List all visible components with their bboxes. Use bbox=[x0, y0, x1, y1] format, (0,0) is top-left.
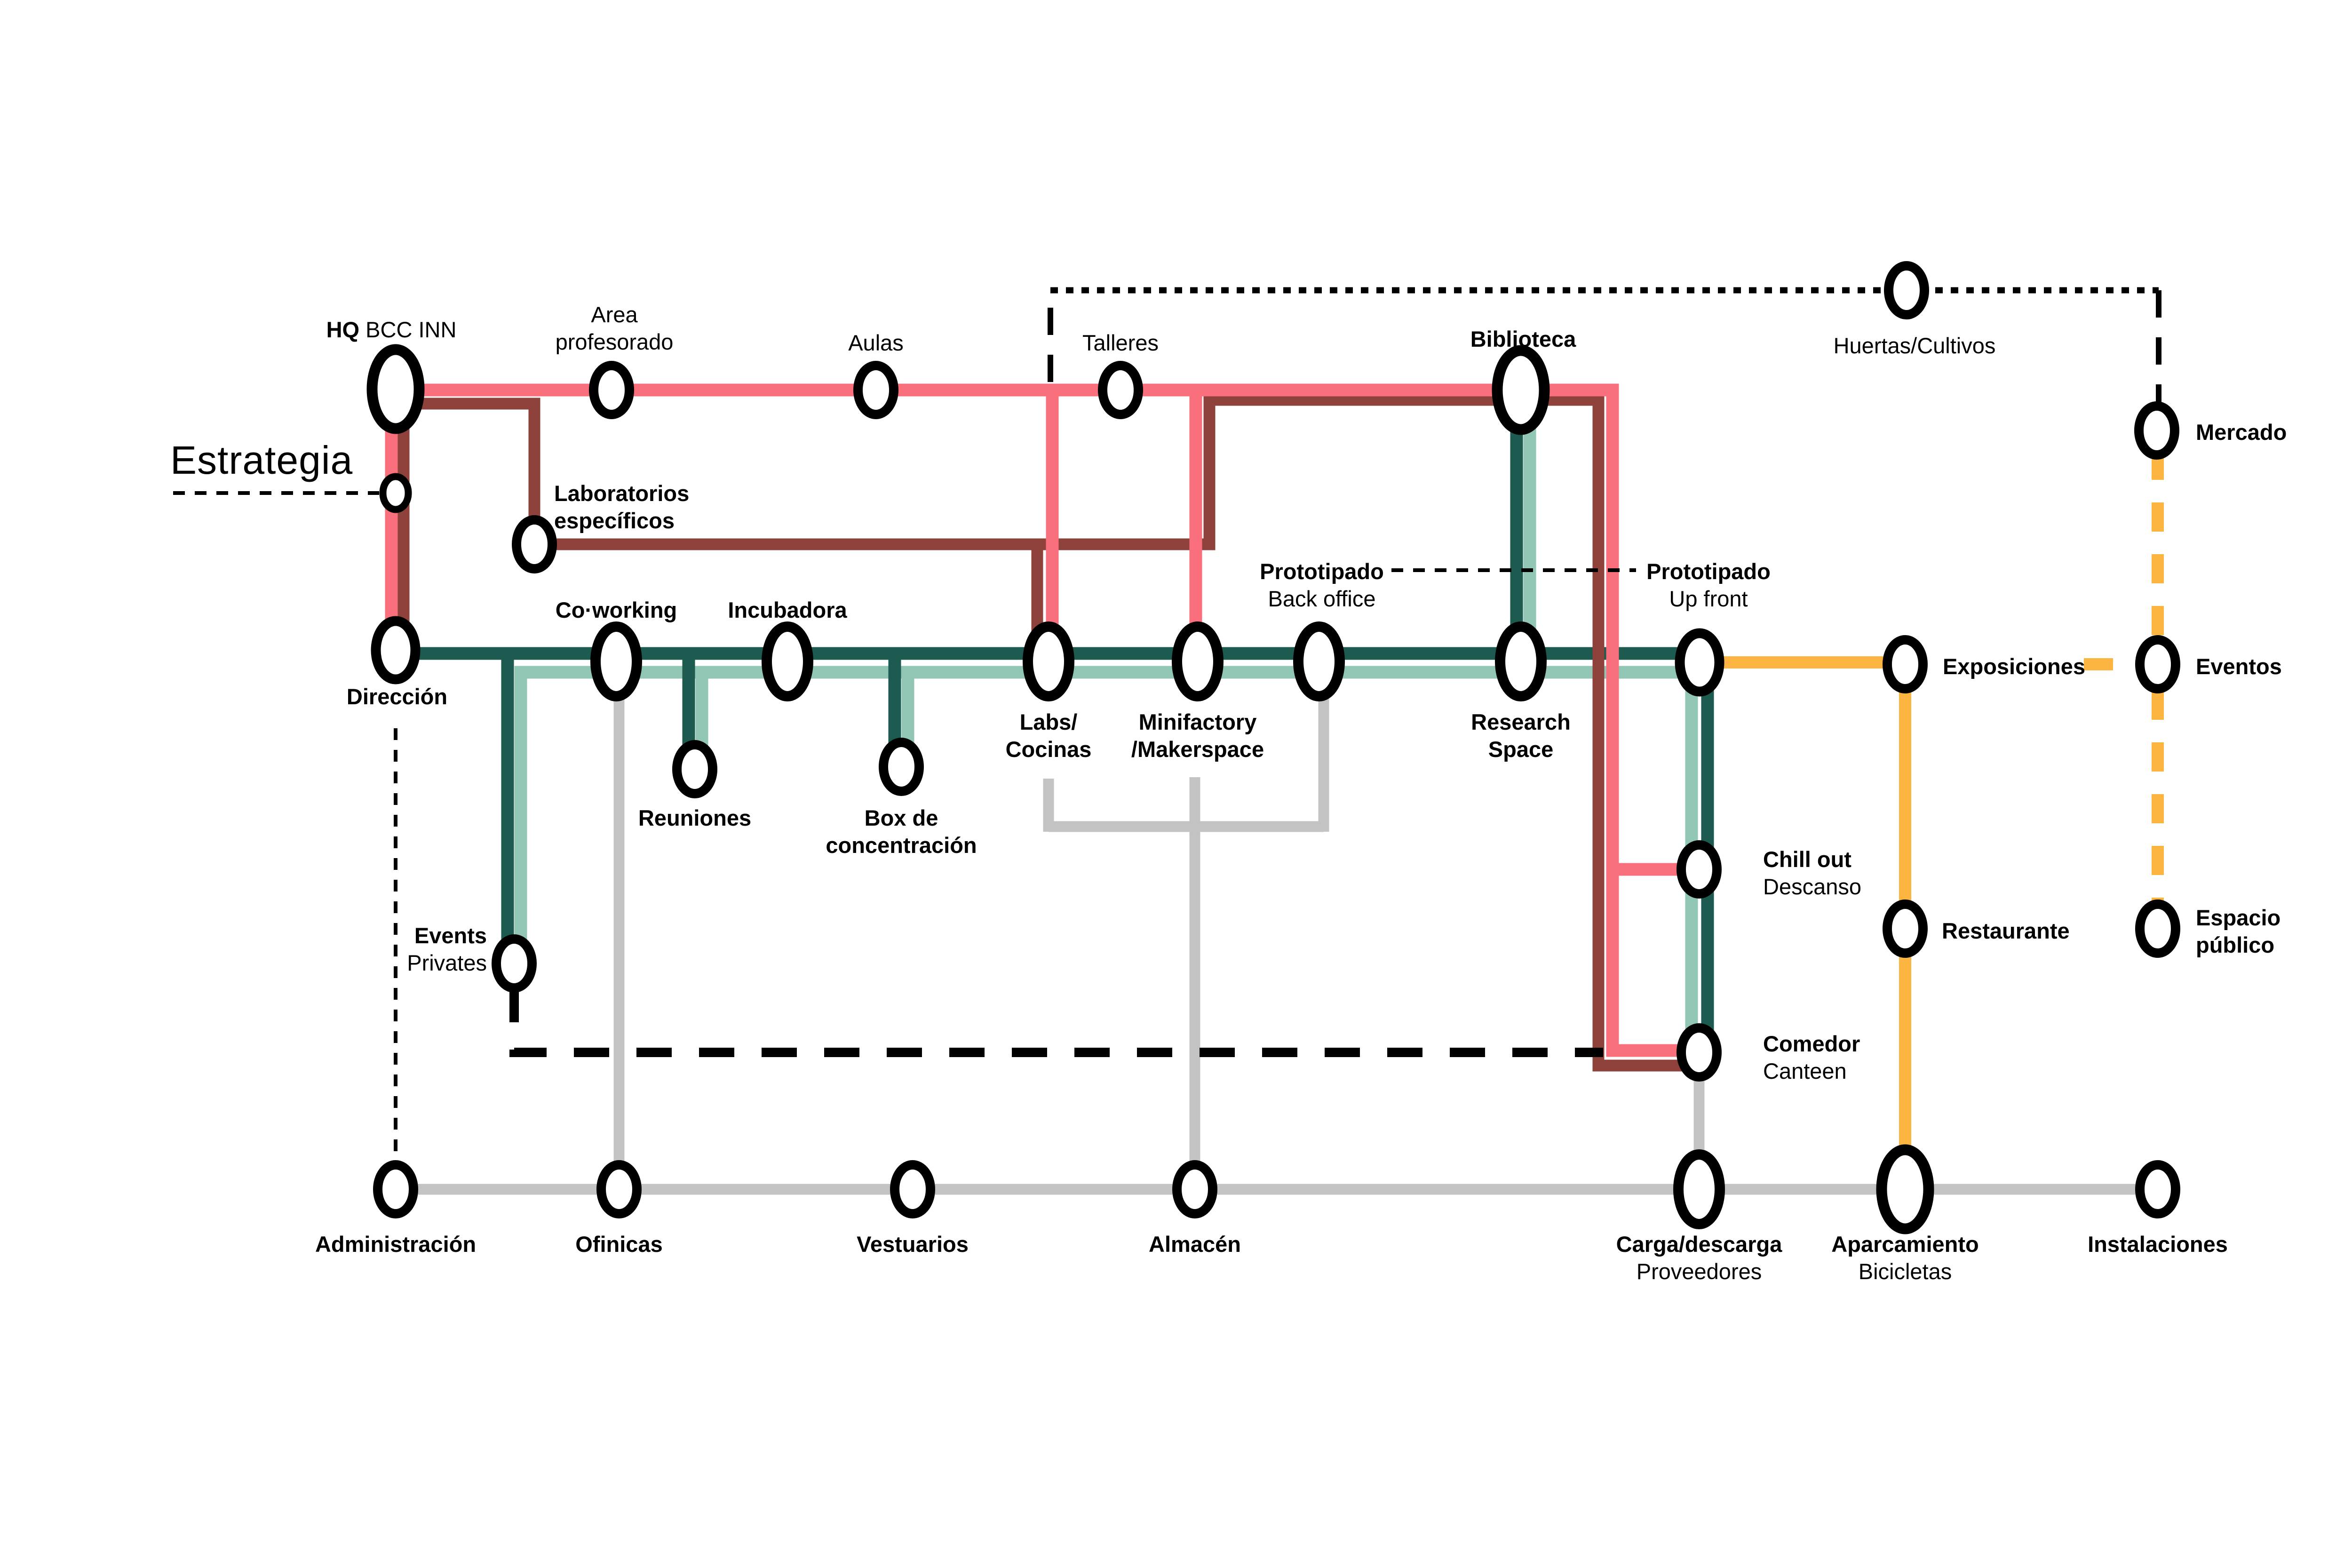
label-administracion-text: Administración bbox=[315, 1232, 476, 1257]
label-talleres-line: Talleres bbox=[1082, 329, 1159, 357]
label-incubadora-text: Incubadora bbox=[728, 597, 847, 622]
label-espacio-publico-text: público bbox=[2196, 932, 2274, 957]
label-area-profesorado-text: profesorado bbox=[556, 329, 674, 354]
label-labs-cocinas-text: Cocinas bbox=[1006, 737, 1092, 762]
label-chill-out-text: Chill out bbox=[1763, 847, 1851, 872]
station-aparcamiento bbox=[1882, 1150, 1929, 1229]
station-administracion bbox=[378, 1165, 413, 1214]
station-coworking bbox=[596, 627, 637, 696]
label-carga-descarga-line: Proveedores bbox=[1616, 1258, 1782, 1285]
station-talleres bbox=[1103, 366, 1138, 414]
label-exposiciones: Exposiciones bbox=[1943, 653, 2085, 680]
station-eventos bbox=[2140, 640, 2176, 689]
label-coworking-text: Co·working bbox=[556, 597, 677, 622]
label-direccion-line: Dirección bbox=[347, 683, 447, 710]
station-labs-cocinas bbox=[1028, 627, 1069, 696]
label-minifactory-line: Minifactory bbox=[1131, 708, 1264, 736]
label-laboratorios-line: Laboratorios bbox=[554, 480, 689, 507]
line-dashed-events-comedor bbox=[514, 987, 1603, 1052]
label-area-profesorado-line: profesorado bbox=[556, 328, 674, 356]
label-mercado: Mercado bbox=[2196, 419, 2287, 446]
label-prototipado-back: PrototipadoBack office bbox=[1260, 558, 1384, 613]
label-eventos-text: Eventos bbox=[2196, 654, 2282, 679]
label-labs-cocinas-text: Labs/ bbox=[1020, 709, 1078, 734]
label-espacio-publico-line: Espacio bbox=[2196, 904, 2280, 931]
label-talleres-text: Talleres bbox=[1082, 330, 1159, 355]
label-laboratorios-text: específicos bbox=[554, 508, 675, 533]
label-laboratorios: Laboratoriosespecíficos bbox=[554, 480, 689, 534]
label-instalaciones-text: Instalaciones bbox=[2088, 1232, 2228, 1257]
label-events-privates: EventsPrivates bbox=[407, 922, 487, 977]
label-huertas-text: Huertas/Cultivos bbox=[1834, 333, 1996, 358]
label-labs-cocinas-line: Cocinas bbox=[1006, 736, 1092, 763]
station-espacio-publico bbox=[2140, 904, 2176, 953]
station-chill-out bbox=[1681, 845, 1717, 894]
label-prototipado-up-text: Up front bbox=[1669, 586, 1748, 611]
label-chill-out-line: Chill out bbox=[1763, 846, 1861, 873]
label-aparcamiento-line: Bicicletas bbox=[1831, 1258, 1979, 1285]
label-research-space-text: Research bbox=[1471, 709, 1571, 734]
label-events-privates-line: Privates bbox=[407, 949, 487, 977]
station-aulas bbox=[858, 366, 894, 414]
label-ofinicas: Ofinicas bbox=[575, 1231, 662, 1258]
label-chill-out-text: Descanso bbox=[1763, 874, 1861, 899]
station-almacen bbox=[1177, 1165, 1213, 1214]
label-espacio-publico-text: Espacio bbox=[2196, 905, 2280, 930]
station-laboratorios bbox=[516, 520, 552, 569]
label-huertas-line: Huertas/Cultivos bbox=[1834, 332, 1996, 359]
station-restaurante bbox=[1887, 904, 1923, 953]
label-mercado-text: Mercado bbox=[2196, 420, 2287, 445]
station-estrategia bbox=[383, 477, 408, 509]
label-research-space: ResearchSpace bbox=[1471, 708, 1571, 763]
metro-map-svg bbox=[0, 0, 2352, 1568]
station-incubadora bbox=[767, 627, 808, 696]
label-prototipado-up-line: Prototipado bbox=[1646, 558, 1771, 585]
label-huertas: Huertas/Cultivos bbox=[1834, 332, 1996, 359]
label-research-space-line: Space bbox=[1471, 736, 1571, 763]
label-almacen: Almacén bbox=[1149, 1231, 1241, 1258]
metro-map-canvas: HQ BCC INNAreaprofesoradoAulasTalleresBi… bbox=[0, 0, 2352, 1568]
label-box-concentracion-line: concentración bbox=[826, 832, 977, 859]
station-direccion bbox=[376, 621, 415, 679]
label-administracion: Administración bbox=[315, 1231, 476, 1258]
label-comedor-text: Canteen bbox=[1763, 1059, 1847, 1083]
label-aulas-line: Aulas bbox=[848, 329, 904, 357]
station-research-space bbox=[1500, 627, 1542, 696]
label-comedor-line: Comedor bbox=[1763, 1030, 1860, 1058]
label-estrategia-line: Estrategia bbox=[170, 438, 353, 483]
label-espacio-publico: Espaciopúblico bbox=[2196, 904, 2280, 959]
station-hq bbox=[372, 350, 419, 429]
label-comedor: ComedorCanteen bbox=[1763, 1030, 1860, 1085]
label-chill-out: Chill outDescanso bbox=[1763, 846, 1861, 900]
label-box-concentracion-text: Box de bbox=[865, 805, 938, 830]
label-vestuarios-text: Vestuarios bbox=[857, 1232, 969, 1257]
label-area-profesorado-text: Area bbox=[591, 302, 637, 327]
label-instalaciones: Instalaciones bbox=[2088, 1231, 2228, 1258]
label-exposiciones-text: Exposiciones bbox=[1943, 654, 2085, 679]
label-aparcamiento-line: Aparcamiento bbox=[1831, 1231, 1979, 1258]
label-box-concentracion-line: Box de bbox=[826, 804, 977, 832]
station-prototipado-back bbox=[1298, 627, 1340, 696]
label-carga-descarga-text: Carga/descarga bbox=[1616, 1232, 1782, 1257]
label-labs-cocinas-line: Labs/ bbox=[1006, 708, 1092, 736]
label-eventos-line: Eventos bbox=[2196, 653, 2282, 680]
station-events-privates bbox=[496, 939, 532, 988]
label-instalaciones-line: Instalaciones bbox=[2088, 1231, 2228, 1258]
label-aulas-text: Aulas bbox=[848, 330, 904, 355]
label-estrategia: Estrategia bbox=[170, 438, 353, 483]
label-direccion-text: Dirección bbox=[347, 684, 447, 709]
label-minifactory-text: Minifactory bbox=[1139, 709, 1257, 734]
label-biblioteca: Biblioteca bbox=[1470, 326, 1576, 353]
station-minifactory bbox=[1177, 627, 1218, 696]
label-prototipado-up-line: Up front bbox=[1646, 585, 1771, 613]
label-incubadora: Incubadora bbox=[728, 597, 847, 624]
label-reuniones: Reuniones bbox=[638, 804, 751, 832]
label-minifactory-text: /Makerspace bbox=[1131, 737, 1264, 762]
label-minifactory: Minifactory/Makerspace bbox=[1131, 708, 1264, 763]
label-carga-descarga: Carga/descargaProveedores bbox=[1616, 1231, 1782, 1285]
label-carga-descarga-text: Proveedores bbox=[1637, 1259, 1762, 1284]
label-ofinicas-text: Ofinicas bbox=[575, 1232, 662, 1257]
station-instalaciones bbox=[2140, 1165, 2176, 1214]
label-research-space-text: Space bbox=[1488, 737, 1553, 762]
label-direccion: Dirección bbox=[347, 683, 447, 710]
label-box-concentracion-text: concentración bbox=[826, 833, 977, 858]
label-area-profesorado-line: Area bbox=[556, 301, 674, 328]
label-talleres: Talleres bbox=[1082, 329, 1159, 357]
label-almacen-line: Almacén bbox=[1149, 1231, 1241, 1258]
label-aulas: Aulas bbox=[848, 329, 904, 357]
station-huertas bbox=[1889, 266, 1924, 315]
label-laboratorios-line: específicos bbox=[554, 507, 689, 534]
label-restaurante-text: Restaurante bbox=[1942, 918, 2070, 943]
station-ofinicas bbox=[601, 1165, 637, 1214]
label-aparcamiento-text: Bicicletas bbox=[1859, 1259, 1952, 1284]
label-carga-descarga-line: Carga/descarga bbox=[1616, 1231, 1782, 1258]
label-restaurante: Restaurante bbox=[1942, 917, 2070, 945]
label-prototipado-up-text: Prototipado bbox=[1646, 559, 1771, 584]
label-ofinicas-line: Ofinicas bbox=[575, 1231, 662, 1258]
label-estrategia-text: Estrategia bbox=[170, 438, 353, 482]
label-events-privates-text: Events bbox=[414, 923, 487, 948]
label-hq-line: HQ BCC INN bbox=[326, 316, 457, 343]
label-restaurante-line: Restaurante bbox=[1942, 917, 2070, 945]
station-box-concentracion bbox=[883, 742, 919, 791]
station-exposiciones bbox=[1887, 640, 1923, 689]
label-incubadora-line: Incubadora bbox=[728, 597, 847, 624]
label-aparcamiento-text: Aparcamiento bbox=[1831, 1232, 1979, 1257]
label-events-privates-line: Events bbox=[407, 922, 487, 949]
label-comedor-line: Canteen bbox=[1763, 1058, 1860, 1085]
label-prototipado-back-line: Back office bbox=[1260, 585, 1384, 613]
station-biblioteca bbox=[1497, 350, 1544, 430]
station-carga-descarga bbox=[1678, 1154, 1720, 1224]
label-events-privates-text: Privates bbox=[407, 950, 487, 975]
station-junction-expo bbox=[1680, 633, 1719, 692]
label-comedor-text: Comedor bbox=[1763, 1031, 1860, 1056]
station-comedor bbox=[1681, 1028, 1717, 1077]
label-labs-cocinas: Labs/Cocinas bbox=[1006, 708, 1092, 763]
label-vestuarios-line: Vestuarios bbox=[857, 1231, 969, 1258]
label-minifactory-line: /Makerspace bbox=[1131, 736, 1264, 763]
label-biblioteca-line: Biblioteca bbox=[1470, 326, 1576, 353]
station-mercado bbox=[2139, 406, 2175, 455]
label-administracion-line: Administración bbox=[315, 1231, 476, 1258]
label-coworking: Co·working bbox=[556, 597, 677, 624]
label-research-space-line: Research bbox=[1471, 708, 1571, 736]
label-aparcamiento: AparcamientoBicicletas bbox=[1831, 1231, 1979, 1285]
label-prototipado-back-text: Prototipado bbox=[1260, 559, 1384, 584]
station-area-profesorado bbox=[594, 366, 629, 414]
label-hq-text: HQ bbox=[326, 317, 360, 342]
label-laboratorios-text: Laboratorios bbox=[554, 481, 689, 506]
label-hq: HQ BCC INN bbox=[326, 316, 457, 343]
label-eventos: Eventos bbox=[2196, 653, 2282, 680]
label-almacen-text: Almacén bbox=[1149, 1232, 1241, 1257]
label-coworking-line: Co·working bbox=[556, 597, 677, 624]
label-mercado-line: Mercado bbox=[2196, 419, 2287, 446]
label-prototipado-up: PrototipadoUp front bbox=[1646, 558, 1771, 613]
label-exposiciones-line: Exposiciones bbox=[1943, 653, 2085, 680]
label-espacio-publico-line: público bbox=[2196, 931, 2280, 959]
label-box-concentracion: Box deconcentración bbox=[826, 804, 977, 859]
label-area-profesorado: Areaprofesorado bbox=[556, 301, 674, 356]
label-biblioteca-text: Biblioteca bbox=[1470, 326, 1576, 351]
label-chill-out-line: Descanso bbox=[1763, 873, 1861, 900]
label-prototipado-back-text: Back office bbox=[1268, 586, 1375, 611]
label-reuniones-text: Reuniones bbox=[638, 805, 751, 830]
station-reuniones bbox=[677, 745, 713, 794]
label-hq-text: BCC INN bbox=[359, 317, 456, 342]
label-reuniones-line: Reuniones bbox=[638, 804, 751, 832]
label-prototipado-back-line: Prototipado bbox=[1260, 558, 1384, 585]
label-vestuarios: Vestuarios bbox=[857, 1231, 969, 1258]
station-vestuarios bbox=[895, 1165, 930, 1214]
